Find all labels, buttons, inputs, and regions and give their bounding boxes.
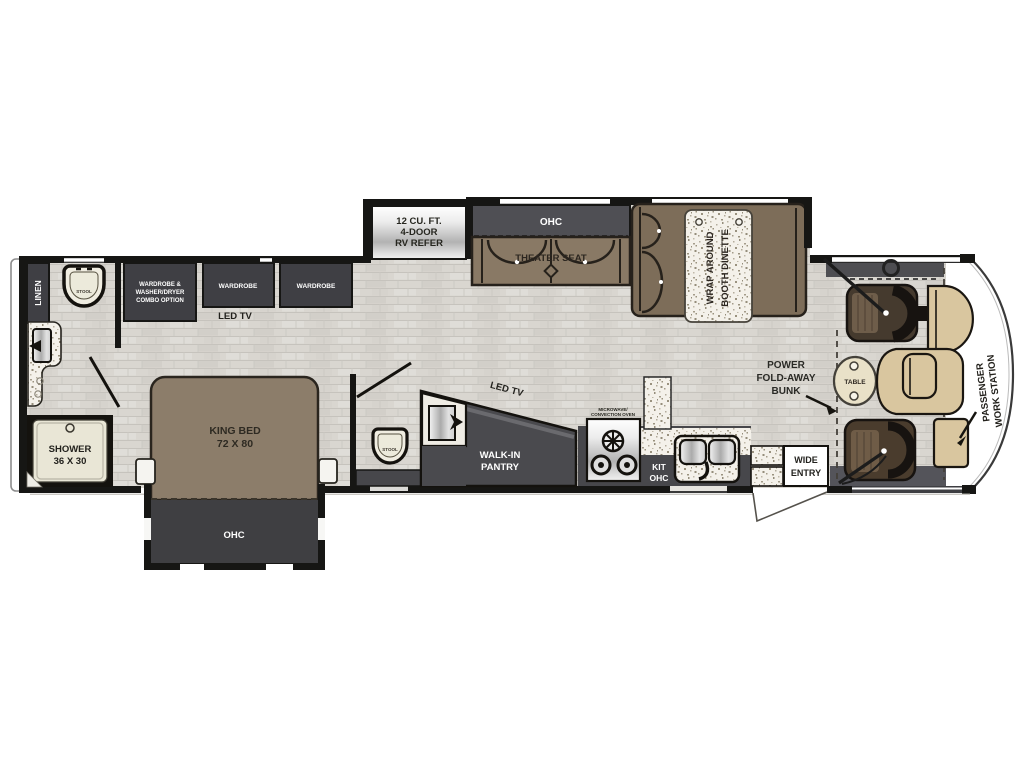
svg-text:PANTRY: PANTRY bbox=[481, 462, 520, 473]
svg-text:12 CU. FT.: 12 CU. FT. bbox=[396, 216, 441, 227]
svg-text:LINEN: LINEN bbox=[33, 280, 43, 306]
svg-text:BUNK: BUNK bbox=[772, 386, 802, 397]
svg-text:KIT: KIT bbox=[652, 462, 667, 472]
svg-text:COMBO OPTION: COMBO OPTION bbox=[136, 298, 184, 304]
svg-text:WARDROBE: WARDROBE bbox=[297, 283, 336, 290]
svg-text:CONVECTION OVEN: CONVECTION OVEN bbox=[591, 412, 635, 417]
svg-text:ENTRY: ENTRY bbox=[791, 468, 821, 478]
svg-text:72 X 80: 72 X 80 bbox=[217, 438, 253, 450]
svg-text:OHC: OHC bbox=[650, 473, 669, 483]
svg-text:OHC: OHC bbox=[223, 530, 244, 541]
svg-text:OHC: OHC bbox=[540, 217, 562, 228]
svg-text:WASHER/DRYER: WASHER/DRYER bbox=[136, 290, 185, 296]
svg-text:WALK-IN: WALK-IN bbox=[480, 450, 521, 461]
svg-text:STOOL: STOOL bbox=[382, 447, 398, 452]
svg-text:WARDROBE: WARDROBE bbox=[219, 283, 258, 290]
svg-text:WIDE: WIDE bbox=[794, 455, 818, 465]
svg-text:THEATER SEAT: THEATER SEAT bbox=[515, 253, 587, 264]
svg-text:POWER: POWER bbox=[767, 360, 806, 371]
svg-text:4-DOOR: 4-DOOR bbox=[401, 227, 438, 238]
svg-text:TABLE: TABLE bbox=[844, 379, 866, 386]
svg-text:FOLD-AWAY: FOLD-AWAY bbox=[756, 373, 815, 384]
svg-text:LED TV: LED TV bbox=[218, 311, 252, 322]
svg-text:WARDROBE &: WARDROBE & bbox=[139, 282, 181, 288]
svg-text:36 X 30: 36 X 30 bbox=[54, 456, 87, 467]
svg-text:RV REFER: RV REFER bbox=[395, 238, 443, 249]
svg-text:STOOL: STOOL bbox=[76, 289, 92, 294]
svg-text:SHOWER: SHOWER bbox=[49, 444, 92, 455]
svg-text:KING BED: KING BED bbox=[209, 425, 261, 437]
